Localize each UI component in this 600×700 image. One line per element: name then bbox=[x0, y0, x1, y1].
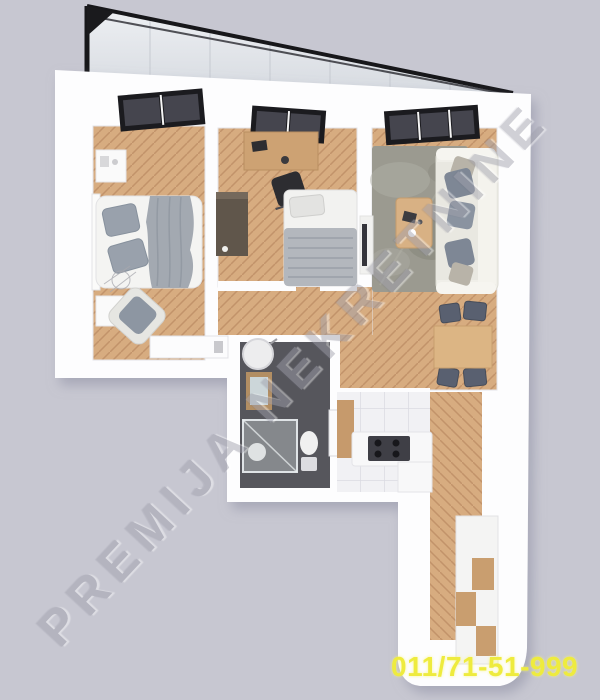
kitchen-cabinet-wood bbox=[337, 400, 354, 458]
floor-plan-scene: PREMIJA NEKRETNINE 011/71-51-999 bbox=[0, 0, 600, 700]
hallway-connector-floor bbox=[340, 335, 430, 392]
wardrobe-wood-door bbox=[472, 558, 494, 590]
kitchen-counter-return bbox=[398, 462, 432, 492]
wardrobe-item bbox=[222, 246, 228, 252]
shelf-item bbox=[214, 341, 223, 353]
bathroom-mirror bbox=[250, 377, 268, 405]
tv bbox=[362, 224, 367, 266]
nightstand-decor bbox=[100, 156, 109, 167]
desk-item bbox=[281, 156, 289, 164]
wardrobe-wood-door bbox=[476, 626, 496, 656]
entry-wardrobe bbox=[456, 516, 498, 664]
coffee-table bbox=[396, 198, 432, 248]
bathroom-door bbox=[329, 410, 338, 456]
living-room-window bbox=[384, 105, 480, 145]
floor-plan-render bbox=[0, 0, 600, 700]
nightstand-item bbox=[112, 159, 118, 165]
dining-table bbox=[434, 326, 492, 368]
single-bed-pillow bbox=[289, 194, 325, 217]
wardrobe-wood-door bbox=[456, 592, 476, 626]
shower-drain bbox=[248, 443, 266, 461]
bathroom-sink bbox=[243, 339, 273, 369]
wardrobe-top-edge bbox=[216, 192, 248, 199]
wardrobe-dark bbox=[216, 192, 248, 256]
shower bbox=[243, 420, 297, 472]
bedroom-1-window bbox=[118, 88, 206, 131]
sofa bbox=[436, 148, 498, 294]
laptop bbox=[251, 140, 267, 152]
toilet bbox=[300, 431, 318, 471]
stove bbox=[368, 436, 410, 461]
hallway-floor bbox=[218, 287, 372, 335]
